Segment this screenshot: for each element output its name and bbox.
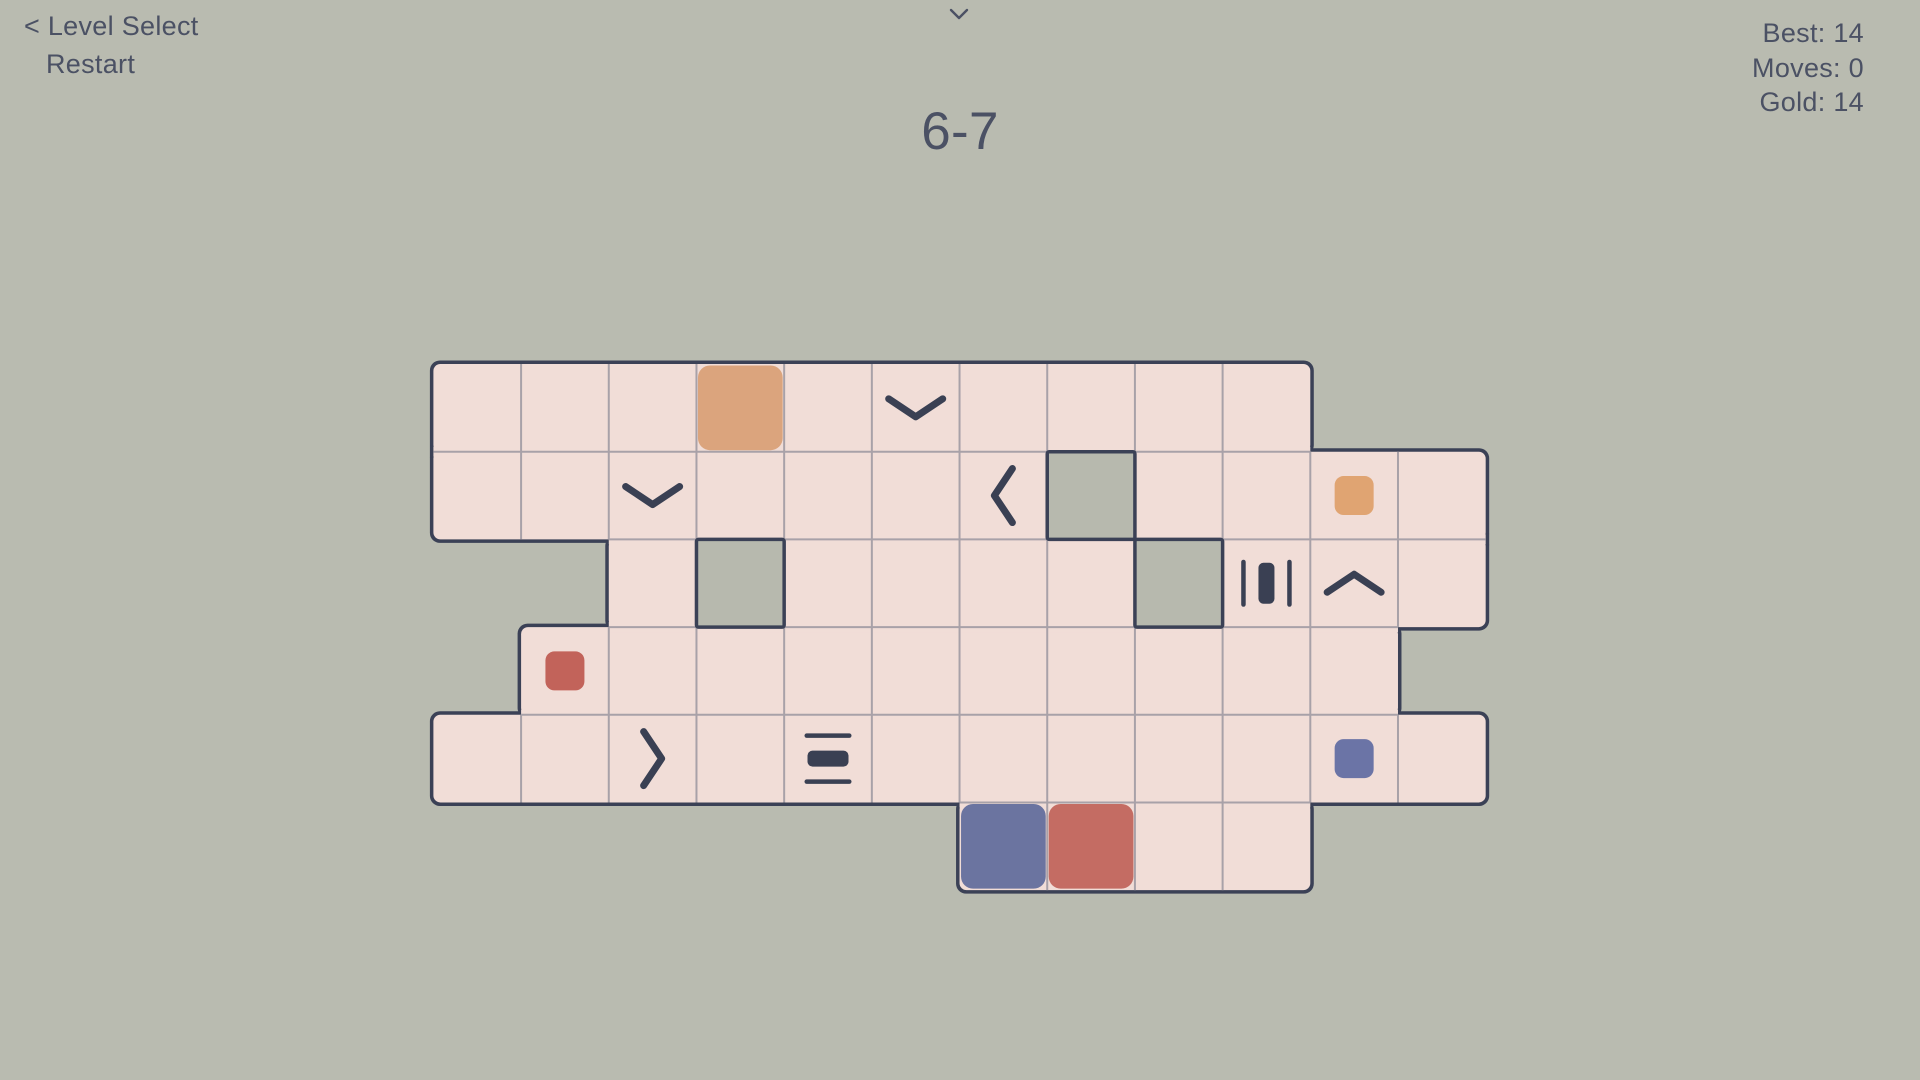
- block-orange-large[interactable]: [698, 366, 783, 451]
- hole-cell: [1135, 539, 1223, 627]
- block-blue-small[interactable]: [1335, 739, 1374, 778]
- block-orange-small[interactable]: [1335, 476, 1374, 515]
- block-blue-large[interactable]: [961, 804, 1046, 889]
- game-board[interactable]: [0, 0, 1920, 1080]
- hole-cell: [1047, 452, 1135, 540]
- game-screen: < Level Select Restart Best: 14 Moves: 0…: [0, 0, 1920, 1080]
- hole-cell: [696, 539, 784, 627]
- block-red-small[interactable]: [545, 651, 584, 690]
- block-red-large[interactable]: [1049, 804, 1134, 889]
